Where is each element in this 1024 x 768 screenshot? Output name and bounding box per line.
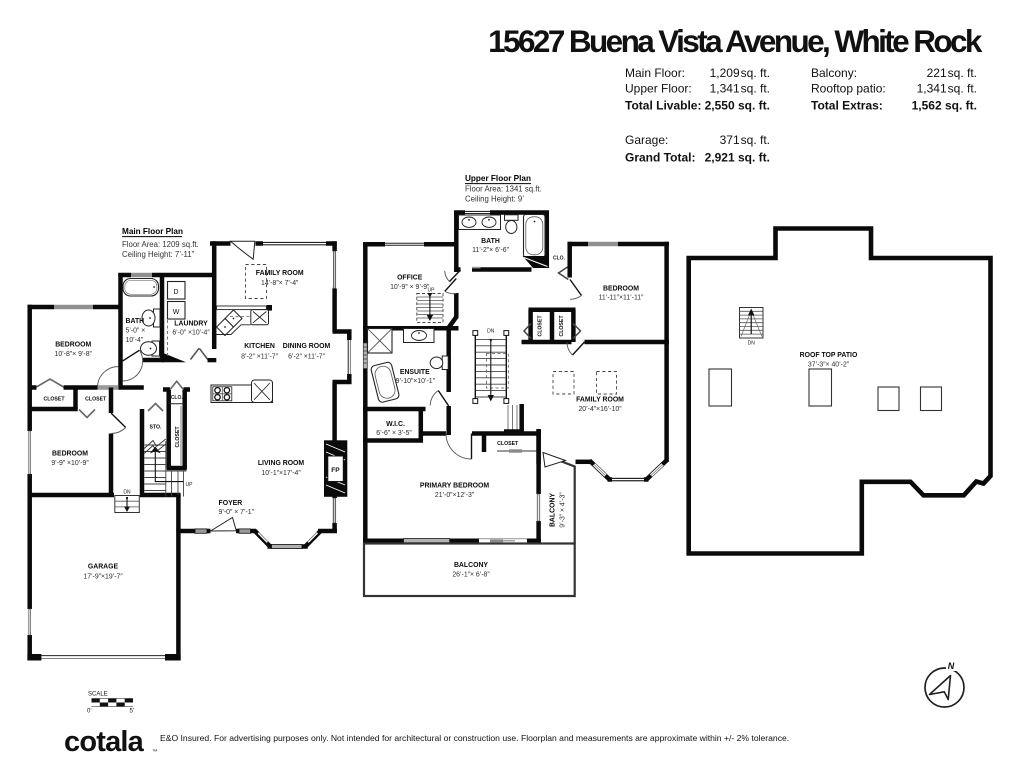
- svg-text:BEDROOM: BEDROOM: [52, 451, 88, 458]
- svg-text:FAMILY ROOM: FAMILY ROOM: [576, 397, 624, 404]
- svg-text:10’-1”×17’-4”: 10’-1”×17’-4”: [261, 470, 301, 477]
- svg-text:8’-2” ×11’-7”: 8’-2” ×11’-7”: [241, 354, 279, 361]
- svg-text:6’-0” ×10’-4”: 6’-0” ×10’-4”: [172, 330, 210, 337]
- svg-text:Floor Area: 1209 sq.ft.: Floor Area: 1209 sq.ft.: [122, 240, 199, 249]
- svg-text:Grand Total:: Grand Total:: [625, 151, 695, 165]
- svg-text:1,209 sq. ft.: 1,209 sq. ft.: [710, 66, 770, 80]
- svg-text:Main Floor Plan: Main Floor Plan: [122, 227, 183, 236]
- svg-text:D: D: [173, 289, 178, 296]
- svg-text:PRIMARY BEDROOM: PRIMARY BEDROOM: [420, 483, 490, 490]
- svg-text:5’-0” ×: 5’-0” ×: [126, 328, 146, 335]
- svg-text:N: N: [948, 661, 955, 671]
- svg-text:ROOF TOP PATIO: ROOF TOP PATIO: [800, 352, 858, 359]
- svg-text:DN: DN: [487, 329, 495, 335]
- svg-text:Ceiling Height: 7’-11”: Ceiling Height: 7’-11”: [122, 250, 195, 259]
- svg-text:Total Livable:: Total Livable:: [625, 99, 701, 113]
- svg-text:UP: UP: [428, 288, 436, 294]
- svg-text:9’-3” × 4’-3”: 9’-3” × 4’-3”: [560, 492, 567, 528]
- svg-text:10’-9” × 9’-9”: 10’-9” × 9’-9”: [390, 284, 430, 291]
- svg-text:BALCONY: BALCONY: [550, 493, 557, 527]
- svg-text:FAMILY ROOM: FAMILY ROOM: [256, 270, 304, 277]
- svg-text:1,341 sq. ft.: 1,341 sq. ft.: [710, 82, 770, 96]
- svg-text:21’-0”×12’-3”: 21’-0”×12’-3”: [435, 492, 475, 499]
- svg-text:ENSUITE: ENSUITE: [400, 369, 430, 376]
- svg-text:cotala: cotala: [64, 726, 145, 758]
- svg-text:GARAGE: GARAGE: [88, 564, 119, 571]
- svg-text:221 sq. ft.: 221 sq. ft.: [927, 66, 977, 80]
- svg-text:BATH: BATH: [126, 318, 145, 325]
- svg-text:CLOSET: CLOSET: [43, 397, 65, 403]
- svg-text:W: W: [173, 309, 180, 316]
- svg-text:20’-4”×16’-10”: 20’-4”×16’-10”: [578, 406, 622, 413]
- svg-text:DN: DN: [123, 490, 131, 496]
- svg-text:15627 Buena Vista Avenue, Whit: 15627 Buena Vista Avenue, White Rock: [488, 23, 983, 59]
- svg-text:W.I.C.: W.I.C.: [386, 421, 405, 428]
- svg-text:37’-3”× 40’-2”: 37’-3”× 40’-2”: [808, 362, 850, 369]
- svg-text:CLOSET: CLOSET: [175, 426, 181, 448]
- svg-text:BALCONY: BALCONY: [454, 562, 488, 569]
- svg-text:26’-1”× 6’-8”: 26’-1”× 6’-8”: [452, 572, 490, 579]
- svg-text:E&O Insured. For advertising p: E&O Insured. For advertising purposes on…: [160, 733, 789, 743]
- svg-text:CLOSET: CLOSET: [85, 397, 107, 403]
- svg-text:CLOSET: CLOSET: [538, 315, 544, 337]
- svg-text:FP: FP: [331, 467, 340, 474]
- svg-text:Ceiling Height: 9’: Ceiling Height: 9’: [465, 194, 524, 203]
- svg-text:DINING ROOM: DINING ROOM: [283, 343, 331, 350]
- svg-text:OFFICE: OFFICE: [397, 274, 423, 281]
- svg-text:9’-10”×10’-1”: 9’-10”×10’-1”: [396, 378, 436, 385]
- svg-text:1,341 sq. ft.: 1,341 sq. ft.: [917, 82, 977, 96]
- svg-text:Main Floor:: Main Floor:: [625, 66, 685, 80]
- svg-text:10’-8”× 9’-8”: 10’-8”× 9’-8”: [55, 351, 93, 358]
- svg-text:1,562 sq. ft.: 1,562 sq. ft.: [912, 99, 977, 113]
- svg-text:BATH: BATH: [481, 238, 500, 245]
- svg-text:UP: UP: [186, 482, 194, 488]
- svg-text:FOYER: FOYER: [219, 500, 243, 507]
- svg-text:Rooftop patio:: Rooftop patio:: [811, 82, 886, 96]
- svg-text:0’: 0’: [87, 709, 92, 715]
- svg-text:CLO.: CLO.: [553, 256, 566, 262]
- svg-text:CLOSET: CLOSET: [497, 441, 519, 447]
- svg-text:371 sq. ft.: 371 sq. ft.: [720, 133, 770, 147]
- svg-text:11’-11”×11’-11”: 11’-11”×11’-11”: [599, 295, 645, 302]
- svg-text:9’-0” × 7’-1”: 9’-0” × 7’-1”: [219, 509, 255, 516]
- svg-text:5’: 5’: [130, 709, 135, 715]
- svg-text:STO.: STO.: [149, 425, 162, 431]
- svg-text:CLOSET: CLOSET: [559, 315, 565, 337]
- svg-text:™: ™: [152, 749, 158, 755]
- svg-text:Floor Area: 1341 sq.ft.: Floor Area: 1341 sq.ft.: [465, 184, 542, 193]
- svg-text:LAUNDRY: LAUNDRY: [174, 321, 208, 328]
- svg-text:SCALE: SCALE: [88, 692, 108, 698]
- svg-text:LIVING ROOM: LIVING ROOM: [258, 460, 305, 467]
- svg-text:CLO.: CLO.: [171, 395, 184, 401]
- svg-text:Balcony:: Balcony:: [811, 66, 857, 80]
- svg-text:2,921 sq. ft.: 2,921 sq. ft.: [705, 151, 770, 165]
- svg-text:DN: DN: [748, 341, 756, 347]
- svg-text:KITCHEN: KITCHEN: [244, 343, 275, 350]
- svg-text:Garage:: Garage:: [625, 133, 668, 147]
- svg-text:BEDROOM: BEDROOM: [55, 342, 91, 349]
- svg-text:Total Extras:: Total Extras:: [811, 99, 883, 113]
- svg-text:6’-6” × 3’-5”: 6’-6” × 3’-5”: [376, 430, 412, 437]
- svg-text:BEDROOM: BEDROOM: [603, 286, 639, 293]
- svg-text:17’-9”×19’-7”: 17’-9”×19’-7”: [83, 574, 123, 581]
- svg-text:Upper Floor Plan: Upper Floor Plan: [465, 174, 531, 183]
- svg-text:9’-9” ×10’-9”: 9’-9” ×10’-9”: [51, 460, 89, 467]
- svg-text:Upper Floor:: Upper Floor:: [625, 82, 692, 96]
- svg-text:10’-4”: 10’-4”: [126, 337, 144, 344]
- svg-text:6’-2” ×11’-7”: 6’-2” ×11’-7”: [288, 354, 326, 361]
- svg-text:2,550 sq. ft.: 2,550 sq. ft.: [705, 99, 770, 113]
- svg-text:11’-2”× 6’-6”: 11’-2”× 6’-6”: [472, 247, 510, 254]
